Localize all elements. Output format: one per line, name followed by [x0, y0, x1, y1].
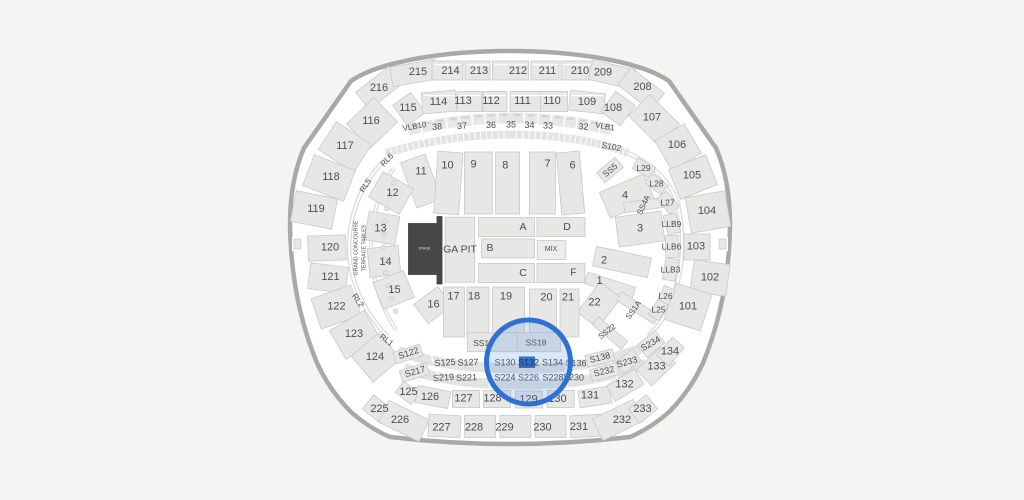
svg-text:S127: S127: [457, 357, 478, 368]
svg-text:L29: L29: [636, 163, 650, 173]
svg-text:LLB6: LLB6: [662, 242, 682, 252]
svg-text:34: 34: [524, 120, 534, 130]
svg-text:230: 230: [533, 422, 551, 434]
svg-text:131: 131: [581, 390, 599, 402]
svg-text:120: 120: [321, 242, 339, 254]
svg-text:MIX: MIX: [545, 246, 558, 253]
svg-text:212: 212: [509, 65, 527, 77]
svg-text:112: 112: [482, 95, 500, 107]
svg-text:12: 12: [386, 187, 398, 199]
svg-text:S219: S219: [433, 372, 455, 383]
svg-text:228: 228: [465, 422, 483, 434]
svg-text:105: 105: [683, 170, 701, 182]
svg-text:125: 125: [399, 386, 417, 398]
svg-text:118: 118: [322, 171, 340, 183]
svg-text:233: 233: [633, 403, 651, 415]
svg-text:GRAND CONCOURSE: GRAND CONCOURSE: [354, 220, 360, 275]
svg-text:21: 21: [562, 292, 574, 304]
svg-text:L25: L25: [651, 305, 665, 315]
svg-text:TERRACE TABLES: TERRACE TABLES: [362, 224, 368, 271]
svg-text:123: 123: [345, 328, 363, 340]
svg-text:216: 216: [370, 82, 388, 94]
svg-text:208: 208: [633, 81, 651, 93]
svg-text:117: 117: [336, 140, 354, 152]
svg-text:126: 126: [421, 391, 439, 403]
svg-text:116: 116: [362, 115, 380, 127]
svg-text:16: 16: [427, 299, 439, 311]
svg-text:127: 127: [454, 393, 472, 405]
svg-text:L28: L28: [649, 179, 663, 189]
svg-text:S221: S221: [456, 372, 477, 383]
svg-text:9: 9: [470, 159, 476, 171]
svg-text:210: 210: [571, 65, 589, 77]
svg-text:37: 37: [457, 121, 467, 131]
svg-text:D: D: [563, 221, 571, 233]
svg-text:L27: L27: [660, 198, 674, 208]
svg-text:114: 114: [430, 96, 448, 108]
svg-text:20: 20: [540, 292, 552, 304]
svg-text:33: 33: [543, 120, 553, 130]
svg-text:213: 213: [470, 65, 488, 77]
svg-text:LLB3: LLB3: [661, 265, 681, 275]
svg-text:17: 17: [447, 291, 459, 303]
svg-text:STAGE: STAGE: [419, 247, 432, 251]
svg-text:32: 32: [578, 121, 589, 132]
svg-text:225: 225: [370, 403, 388, 415]
svg-text:18: 18: [468, 291, 480, 303]
svg-text:2: 2: [601, 255, 607, 267]
svg-text:13: 13: [374, 223, 386, 235]
svg-text:121: 121: [321, 271, 339, 283]
svg-text:109: 109: [578, 96, 596, 108]
svg-text:A: A: [519, 221, 526, 233]
svg-text:209: 209: [594, 67, 612, 79]
svg-text:231: 231: [570, 421, 588, 433]
svg-text:214: 214: [441, 65, 459, 77]
svg-text:1: 1: [596, 275, 602, 287]
svg-text:101: 101: [679, 301, 697, 313]
svg-text:14: 14: [379, 256, 391, 268]
svg-text:211: 211: [539, 65, 557, 77]
svg-text:8: 8: [502, 160, 508, 172]
svg-text:122: 122: [327, 301, 345, 313]
svg-text:22: 22: [588, 297, 600, 309]
svg-text:227: 227: [432, 422, 450, 434]
svg-text:11: 11: [415, 166, 426, 178]
svg-text:226: 226: [391, 414, 409, 426]
svg-text:S125: S125: [434, 357, 456, 368]
svg-text:132: 132: [615, 379, 633, 391]
svg-text:3: 3: [637, 223, 643, 235]
svg-text:107: 107: [643, 112, 661, 124]
svg-text:19: 19: [500, 291, 512, 303]
svg-text:38: 38: [432, 121, 443, 132]
svg-text:113: 113: [454, 95, 472, 107]
svg-text:S132: S132: [518, 357, 539, 367]
svg-text:36: 36: [486, 120, 496, 130]
svg-text:106: 106: [668, 139, 686, 151]
svg-text:B: B: [486, 242, 493, 254]
svg-text:110: 110: [543, 95, 561, 107]
svg-text:35: 35: [506, 120, 516, 130]
svg-text:GA PIT: GA PIT: [443, 244, 477, 256]
svg-text:134: 134: [661, 346, 679, 358]
svg-text:119: 119: [307, 203, 325, 215]
svg-text:133: 133: [647, 361, 665, 373]
svg-text:10: 10: [441, 160, 453, 172]
svg-text:111: 111: [514, 95, 531, 107]
svg-text:108: 108: [604, 102, 622, 114]
svg-text:LLB9: LLB9: [662, 219, 682, 229]
svg-text:15: 15: [388, 284, 400, 296]
svg-text:6: 6: [569, 160, 575, 172]
svg-text:104: 104: [698, 205, 716, 217]
svg-text:7: 7: [544, 158, 550, 170]
svg-text:232: 232: [613, 414, 631, 426]
svg-text:229: 229: [495, 422, 513, 434]
svg-text:F: F: [570, 267, 576, 279]
svg-text:4: 4: [622, 190, 628, 202]
svg-text:102: 102: [701, 272, 719, 284]
svg-text:103: 103: [687, 241, 705, 253]
svg-text:C: C: [519, 267, 527, 279]
svg-text:115: 115: [399, 102, 417, 114]
svg-text:124: 124: [366, 351, 384, 363]
svg-text:215: 215: [409, 66, 427, 78]
svg-text:L26: L26: [658, 291, 672, 301]
